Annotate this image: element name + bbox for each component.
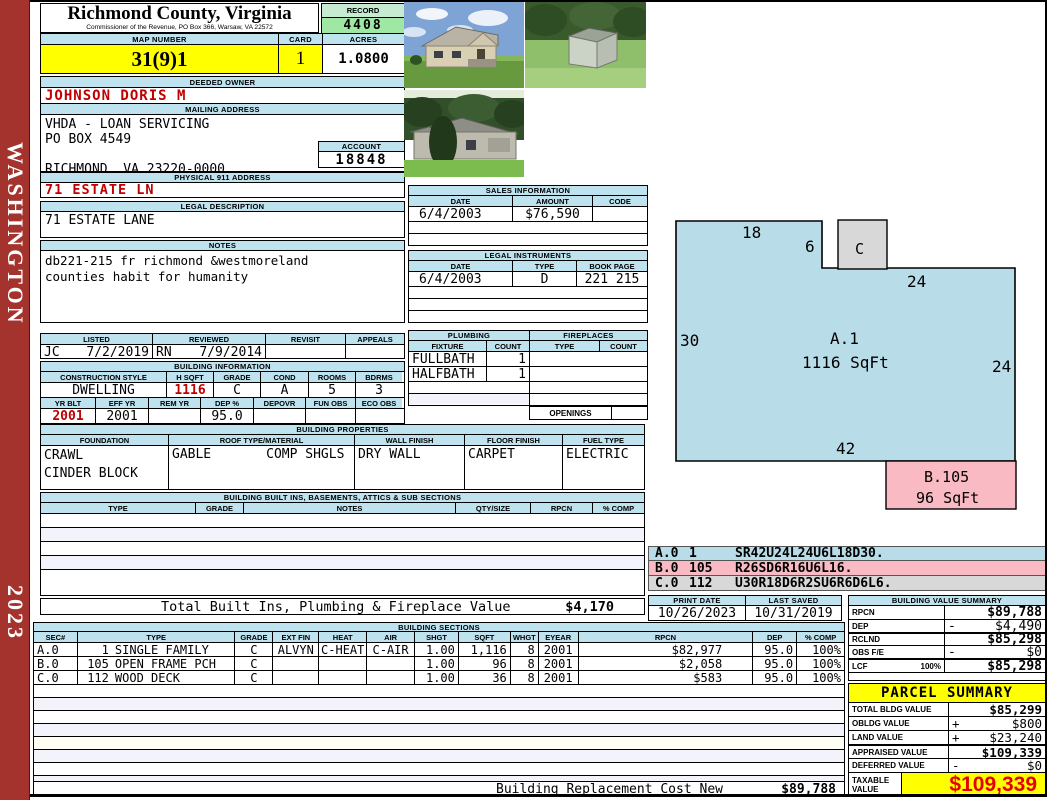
sec-air [367,657,415,670]
sec-type-name: WOOD DECK [115,671,180,685]
sec-col: SEC# [34,632,78,642]
bvs-label: OBS F/E [849,646,945,658]
sec-id: C.0 [34,671,78,685]
year-sidebar: WASHINGTON 2023 [0,0,30,800]
effyr-value: 2001 [96,409,149,424]
extfin-col: EXT FIN [273,632,319,642]
sales-row: 6/4/2003 $76,590 [409,207,647,222]
fuel-type-value: ELECTRIC [563,446,644,490]
sec-extfin: ALVYN [273,643,319,656]
construction-style-value: DWELLING [41,383,167,397]
deeded-owner-name: JOHNSON DORIS M [40,87,405,104]
foundation-value-1: CRAWL [44,447,83,465]
county-header: Richmond County, Virginia Commissioner o… [40,3,319,33]
area-c-code: C [855,240,864,258]
reviewed-by: RN [156,345,172,359]
instr-col-date: DATE [409,261,513,271]
legend-path: SR42U24L24U6L18D30. [725,546,884,561]
building-sketch: 18 6 C 24 30 A.1 1116 SqFt 24 42 B.105 9… [652,198,1048,532]
remyr-value [149,409,201,424]
fireplace-col-count: COUNT [600,341,647,351]
plumbing-col-count: COUNT [487,341,529,351]
wall-finish-value: DRY WALL [355,446,465,490]
sec-rpcn: $583 [579,671,754,685]
yrblt-value: 2001 [41,409,96,424]
sale-date: 6/4/2003 [409,207,513,221]
legend-code: B.0 [649,561,689,576]
roof-type-value: GABLE [172,447,211,462]
sidebar-county-name: WASHINGTON [2,142,28,326]
sec-grade: C [235,643,273,656]
bvs-value: $0 [1026,646,1042,658]
sec-shgt: 1.00 [415,671,459,685]
last-saved-value: 10/31/2019 [745,605,842,621]
ps-value: $109,339 [949,746,1045,758]
ps-value: $23,240 [989,731,1042,744]
sec-grade: C [235,657,273,670]
sec-comp: 100% [797,657,844,670]
sec-id: B.0 [34,657,78,670]
taxable-label-2: VALUE [852,785,879,794]
mailing-line1: VHDA - LOAN SERVICING [45,117,400,132]
record-label: RECORD [322,4,404,18]
sketch-legend-row-b: B.0 105 R26SD6R16U6L16. [648,561,1046,576]
county-title: Richmond County, Virginia [41,4,318,24]
sec-type-num: 105 [81,657,109,670]
replacement-cost-label: Building Replacement Cost New [496,782,723,797]
fixture-name: FULLBATH [409,352,487,366]
instr-bookpage: 221 215 [577,272,647,286]
ps-value: $800 [1012,717,1042,730]
openings-value [611,406,648,420]
legend-value: 105 [689,561,725,576]
legend-code: A.0 [649,546,689,561]
sec-eyear: 2001 [539,643,579,656]
col-foundation: FOUNDATION [41,435,169,445]
built-ins-total-label: Total Built Ins, Plumbing & Fireplace Va… [161,599,511,615]
col-bdrms: BDRMS [356,372,402,382]
roof-material-value: COMP SHGLS [266,447,344,462]
sale-amount: $76,590 [513,207,593,221]
legal-description-value: 71 ESTATE LANE [40,211,405,238]
col-floor: FLOOR FINISH [465,435,563,445]
instrument-row: 6/4/2003 D 221 215 [409,272,647,287]
deppct-value: 95.0 [201,409,254,424]
col-cond: COND [261,372,309,382]
bvs-value: $4,490 [995,620,1042,632]
section-row: B.0 105OPEN FRAME PCH C 1.00 96 8 2001 $… [34,657,844,671]
sec-comp: 100% [797,643,844,656]
shgt-col: SHGT [415,632,459,642]
foundation-value-2: CINDER BLOCK [44,465,138,483]
ps-op: + [952,731,960,744]
review-table: LISTED REVIEWED REVISIT APPEALS JC 7/2/2… [40,333,405,359]
sec-whgt: 8 [511,657,539,670]
funobs-value [306,409,356,424]
instr-type: D [513,272,577,286]
instr-col-type: TYPE [513,261,577,271]
sec-air: C-AIR [367,643,415,656]
sec-type-name: SINGLE FAMILY [115,643,209,656]
listed-header: LISTED [41,334,153,344]
depovr-value [254,409,306,424]
ps-value: $0 [1027,759,1042,772]
dep-col: DEP [753,632,797,642]
commissioner-line: Commissioner of the Revenue, PO Box 366,… [41,24,318,31]
sec-dep: 95.0 [753,671,797,685]
notes-line2: counties habit for humanity [45,269,400,285]
replacement-cost-value: $89,788 [781,782,836,797]
dim-top-left: 18 [742,223,761,242]
bi-col-grade: GRADE [196,503,244,513]
ecoobs-value [356,409,402,424]
bvs-op: - [948,646,956,658]
instr-date: 6/4/2003 [409,272,513,286]
sketch-legend-row-a: A.0 1 SR42U24L24U6L18D30. [648,546,1046,561]
sales-table: DATE AMOUNT CODE 6/4/2003 $76,590 [408,195,648,246]
fixture-count: 1 [487,352,529,366]
sec-eyear: 2001 [539,657,579,670]
legend-path: R26SD6R16U6L16. [725,561,852,576]
col-remyr: REM YR [149,398,201,408]
col-yrblt: YR BLT [41,398,96,408]
legend-path: U30R18D6R2SU6R6D6L6. [725,576,892,591]
cond-value: A [261,383,309,397]
sec-sqft: 96 [459,657,511,670]
col-wall: WALL FINISH [355,435,465,445]
sec-heat [319,657,367,670]
shed-photo [525,2,646,88]
heat-col: HEAT [319,632,367,642]
openings-label: OPENINGS [529,406,612,420]
reviewed-header: REVIEWED [153,334,266,344]
listed-date: 7/2/2019 [86,345,149,359]
col-grade: GRADE [214,372,261,382]
sec-dep: 95.0 [753,643,797,656]
section-row: A.0 1SINGLE FAMILY C ALVYN C-HEAT C-AIR … [34,643,844,657]
sections-empty-rows [33,685,845,781]
bi-col-comp: % COMP [593,503,644,513]
notes-block: db221-215 fr richmond &westmoreland coun… [40,250,405,323]
area-b-code: B.105 [924,468,969,486]
house-side-photo [404,90,524,177]
sec-rpcn: $2,058 [579,657,754,670]
dim-bottom: 42 [836,439,855,458]
sec-whgt: 8 [511,643,539,656]
instr-col-bookpage: BOOK PAGE [577,261,647,271]
building-sections-table: SEC# TYPE GRADE EXT FIN HEAT AIR SHGT SQ… [33,631,845,685]
bvs-spacer [848,672,1046,681]
building-information-table: CONSTRUCTION STYLE H SQFT GRADE COND ROO… [40,371,405,424]
bdrms-value: 3 [356,383,402,397]
area-a-code: A.1 [830,329,859,348]
account-value: 18848 [318,151,405,168]
bvs-value: $85,298 [945,660,1045,672]
reviewed-date: 7/9/2014 [199,345,262,359]
parcel-summary-title: PARCEL SUMMARY [849,684,1045,703]
legal-instruments-table: DATE TYPE BOOK PAGE 6/4/2003 D 221 215 [408,260,648,323]
bi-col-qtysize: QTY/SIZE [456,503,531,513]
record-value: 4408 [322,18,404,33]
col-hsqft: H SQFT [167,372,214,382]
bvs-value: $89,788 [945,606,1045,619]
sales-col-code: CODE [593,196,647,206]
fireplace-col-type: TYPE [530,341,600,351]
legend-code: C.0 [649,576,689,591]
dim-top-right: 24 [907,272,926,291]
rooms-value: 5 [309,383,356,397]
fixture-name: HALFBATH [409,367,487,381]
sec-type-name: OPEN FRAME PCH [115,657,216,670]
dim-right: 24 [992,357,1011,376]
comp-col: % COMP [797,632,844,642]
sec-shgt: 1.00 [415,657,459,670]
parcel-summary: PARCEL SUMMARY TOTAL BLDG VALUE $85,299 … [848,683,1046,797]
col-construction-style: CONSTRUCTION STYLE [41,372,167,382]
built-ins-total-value: $4,170 [565,599,614,615]
sec-heat: C-HEAT [319,643,367,656]
print-date-value: 10/26/2023 [648,605,746,621]
bvs-label: RCLND [849,634,945,645]
ps-value: $85,299 [949,703,1045,716]
sec-extfin [273,671,319,685]
plumbing-row: FULLBATH 1 [409,352,529,367]
sec-dep: 95.0 [753,657,797,670]
sec-id: A.0 [34,643,78,656]
card-value: 1 [278,44,323,74]
sec-air [367,671,415,685]
sec-sqft: 1,116 [459,643,511,656]
ps-label: APPRAISED VALUE [849,746,949,758]
map-number-value: 31(9)1 [40,44,279,74]
hsqft-value: 1116 [167,383,214,397]
eyear-col: EYEAR [539,632,579,642]
sec-type-num: 112 [81,671,109,685]
air-col: AIR [367,632,415,642]
ps-op: + [952,717,960,730]
ps-label: OBLDG VALUE [849,717,949,730]
sale-code [593,207,647,221]
legend-value: 112 [689,576,725,591]
built-ins-table: TYPE GRADE NOTES QTY/SIZE RPCN % COMP [40,502,645,596]
listed-by: JC [44,345,60,359]
revisit-header: REVISIT [266,334,346,344]
sec-comp: 100% [797,671,844,685]
property-record-card: WASHINGTON 2023 Richmond County, Virgini… [0,0,1050,800]
col-effyr: EFF YR [96,398,149,408]
sec-type-num: 1 [81,643,109,656]
ps-label: LAND VALUE [849,731,949,744]
sec-heat [319,671,367,685]
sec-eyear: 2001 [539,671,579,685]
grade-value: C [214,383,261,397]
rpcn-col: RPCN [579,632,754,642]
bvs-label: RPCN [849,606,945,619]
sec-extfin [273,657,319,670]
fireplaces-table: TYPE COUNT [529,340,648,406]
appeals-value [346,345,404,359]
taxable-value: $109,339 [902,773,1045,797]
plumbing-row: HALFBATH 1 [409,367,529,382]
bvs-lcf-pct: 100% [921,662,941,671]
bvs-op: - [948,620,956,632]
sidebar-year: 2023 [2,585,28,641]
ps-label: TOTAL BLDG VALUE [849,703,949,716]
col-roof: ROOF TYPE/MATERIAL [169,435,355,445]
section-row: C.0 112WOOD DECK C 1.00 36 8 2001 $583 9… [34,671,844,685]
built-ins-total-row: Total Built Ins, Plumbing & Fireplace Va… [40,598,645,615]
col-fuel: FUEL TYPE [563,435,644,445]
sketch-legend-row-c: C.0 112 U30R18D6R2SU6R6D6L6. [648,576,1046,591]
plumbing-table: FIXTURE COUNT FULLBATH 1 HALFBATH 1 [408,340,530,406]
replacement-cost-row: Building Replacement Cost New $89,788 [33,781,845,797]
sec-whgt: 8 [511,671,539,685]
ps-op: - [952,759,960,772]
bvs-label: DEP [849,620,945,632]
building-value-summary-table: RPCN $89,788 DEP - $4,490 RCLND $85,298 … [848,605,1046,673]
notes-line1: db221-215 fr richmond &westmoreland [45,253,400,269]
sales-col-date: DATE [409,196,513,206]
area-a-size: 1116 SqFt [802,353,889,372]
sec-sqft: 36 [459,671,511,685]
sec-rpcn: $82,977 [579,643,754,656]
appeals-header: APPEALS [346,334,404,344]
fixture-count: 1 [487,367,529,381]
legend-value: 1 [689,546,725,561]
taxable-label-1: TAXABLE [852,776,889,785]
physical-address-value: 71 ESTATE LN [40,182,405,198]
bi-col-type: TYPE [41,503,196,513]
area-b-size: 96 SqFt [916,489,979,507]
whgt-col: WHGT [511,632,539,642]
col-deppct: DEP % [201,398,254,408]
acres-value: 1.0800 [322,44,405,74]
type-col: TYPE [78,632,236,642]
bvs-value: $85,298 [945,634,1045,645]
col-depovr: DEPOVR [254,398,306,408]
sales-col-amount: AMOUNT [513,196,593,206]
grade-col: GRADE [235,632,273,642]
col-rooms: ROOMS [309,372,356,382]
ps-label: DEFERRED VALUE [849,759,949,772]
bi-col-notes: NOTES [244,503,456,513]
bvs-label: LCF [852,662,868,671]
bi-col-rpcn: RPCN [531,503,593,513]
plumbing-col-fixture: FIXTURE [409,341,487,351]
sqft-col: SQFT [459,632,511,642]
col-funobs: FUN OBS [306,398,356,408]
building-properties-table: FOUNDATION ROOF TYPE/MATERIAL WALL FINIS… [40,434,645,490]
sec-shgt: 1.00 [415,643,459,656]
col-ecoobs: ECO OBS [356,398,402,408]
dim-notch: 6 [805,237,815,256]
record-box: RECORD 4408 [321,3,405,33]
revisit-value [266,345,346,359]
dim-left: 30 [680,331,699,350]
house-front-photo [404,2,524,88]
sec-grade: C [235,671,273,685]
floor-finish-value: CARPET [465,446,563,490]
